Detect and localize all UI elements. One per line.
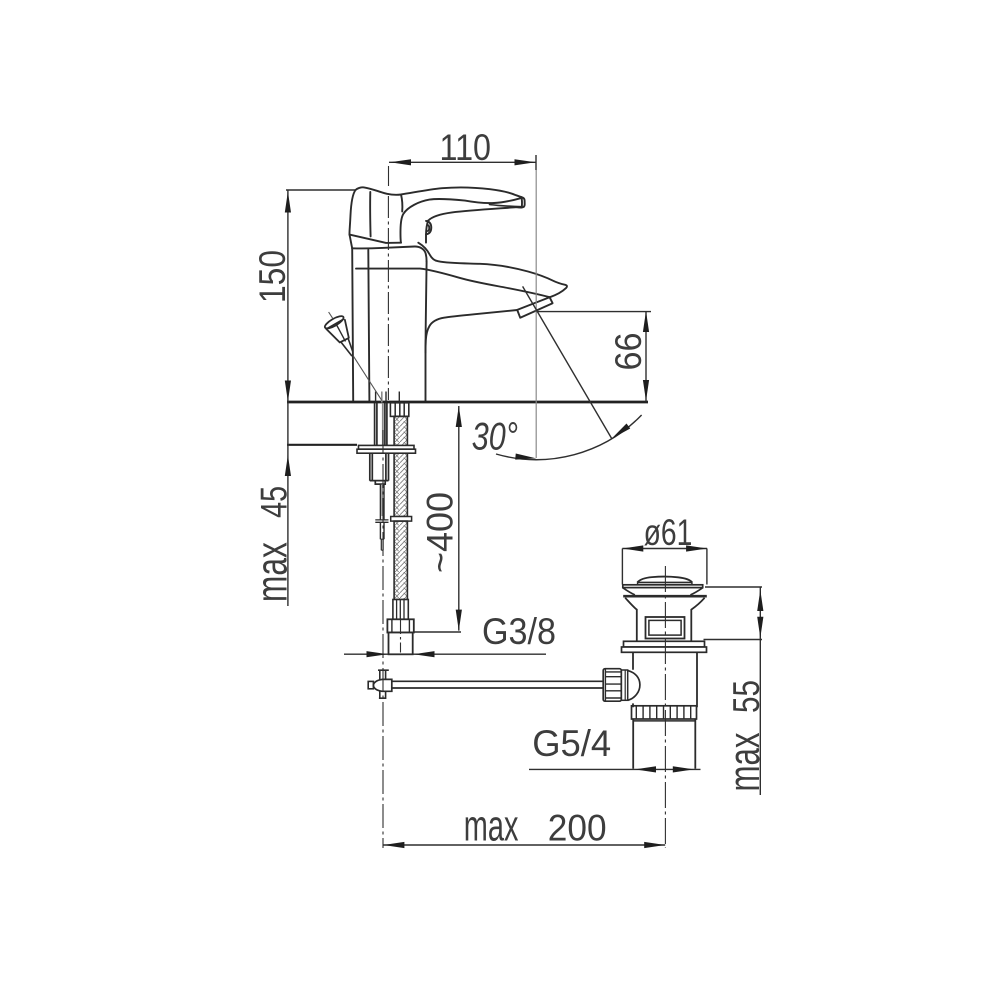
svg-text:110: 110 [440, 127, 492, 168]
svg-text:max: max [247, 542, 296, 602]
svg-text:max: max [464, 802, 519, 851]
svg-text:~400: ~400 [420, 492, 461, 573]
svg-text:30°: 30° [472, 416, 518, 459]
svg-text:150: 150 [252, 250, 293, 303]
svg-text:ø61: ø61 [644, 512, 693, 553]
svg-text:G3/8: G3/8 [482, 611, 556, 652]
svg-text:G5/4: G5/4 [532, 723, 611, 764]
svg-text:45: 45 [253, 486, 294, 518]
svg-text:max: max [720, 733, 769, 792]
svg-text:55: 55 [726, 680, 767, 713]
svg-text:66: 66 [608, 333, 649, 371]
svg-text:200: 200 [548, 808, 607, 849]
